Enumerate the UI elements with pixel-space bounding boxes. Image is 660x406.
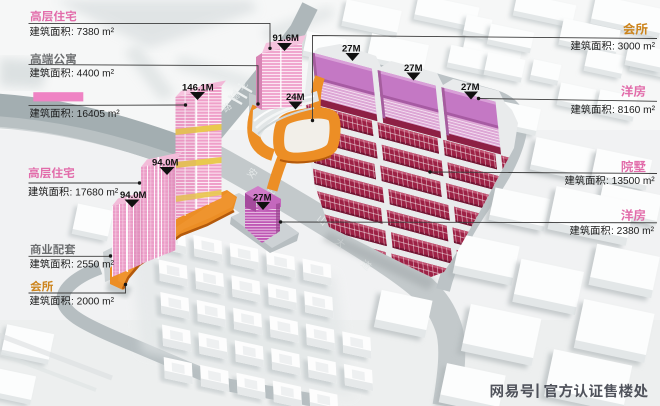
- svg-text:146.1M: 146.1M: [182, 82, 214, 93]
- svg-text:: 17680 m²: : 17680 m²: [70, 187, 119, 198]
- svg-text:94.0M: 94.0M: [152, 157, 178, 168]
- svg-text:27M: 27M: [461, 82, 480, 93]
- svg-text:: 7380 m²: : 7380 m²: [71, 27, 115, 38]
- svg-text:: 2000 m²: : 2000 m²: [71, 296, 115, 307]
- svg-text:27M: 27M: [342, 44, 361, 55]
- svg-text:: 8160 m²: : 8160 m²: [612, 105, 656, 116]
- svg-text:91.6M: 91.6M: [273, 33, 299, 44]
- svg-text:27M: 27M: [404, 63, 423, 74]
- svg-text:24M: 24M: [286, 92, 305, 103]
- svg-text:: 2550 m²: : 2550 m²: [71, 260, 115, 271]
- svg-text:94.0M: 94.0M: [120, 190, 146, 201]
- svg-text:: 3000 m²: : 3000 m²: [612, 41, 656, 52]
- svg-text:: 13500 m²: : 13500 m²: [606, 176, 655, 187]
- svg-text:: 2380 m²: : 2380 m²: [611, 226, 655, 237]
- svg-text:: 16405 m²: : 16405 m²: [71, 109, 120, 120]
- svg-text:: 4400 m²: : 4400 m²: [71, 69, 115, 80]
- svg-text:27M: 27M: [253, 192, 272, 203]
